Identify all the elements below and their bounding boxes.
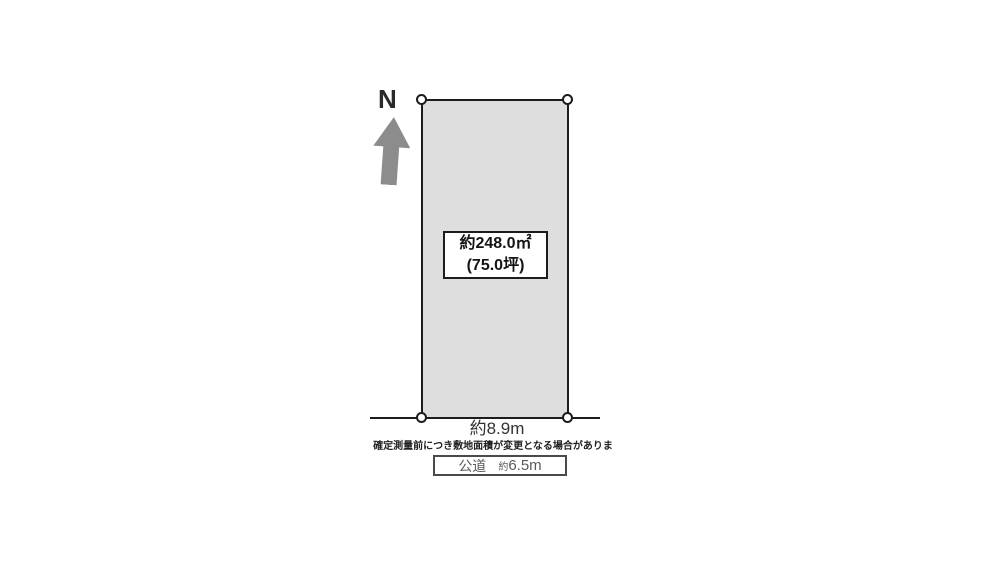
area-label-box: 約248.0㎡ (75.0坪) <box>443 231 548 279</box>
road-label-box: 公道 約6.5m <box>433 455 567 476</box>
road-width-prefix: 約 <box>498 458 508 473</box>
road-width-value: 6.5m <box>508 457 541 474</box>
road-width: 約6.5m <box>498 457 541 474</box>
area-value-sqm: 約248.0㎡ <box>459 233 531 255</box>
frontage-dimension-label: 約8.9m <box>397 420 597 439</box>
north-arrow-icon <box>371 116 413 186</box>
area-value-tsubo: (75.0坪) <box>467 255 525 277</box>
road-name: 公道 <box>458 456 486 476</box>
corner-marker-top-left <box>416 94 427 105</box>
corner-marker-top-right <box>562 94 573 105</box>
north-label: N <box>378 86 397 112</box>
survey-disclaimer-note: 確定測量前につき敷地面積が変更となる場合がありま <box>293 441 693 452</box>
land-plot-diagram: N 約248.0㎡ (75.0坪) 約8.9m 確定測量前につき敷地面積が変更と… <box>0 0 1000 563</box>
